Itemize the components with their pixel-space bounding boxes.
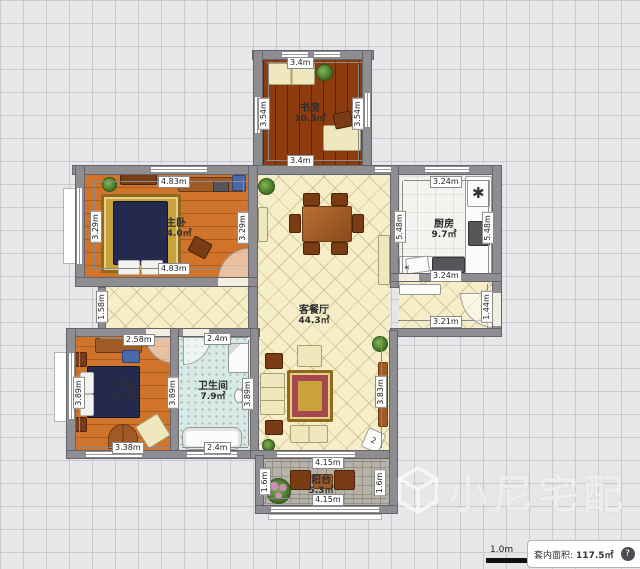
sofa[interactable] [260, 373, 285, 415]
dim-balcony-bottom[interactable]: 4.15m [312, 494, 344, 506]
room-area: 44.3㎡ [284, 316, 344, 326]
scale-label: 1.0m [490, 545, 513, 555]
dim-line [266, 160, 363, 161]
room-name: 卫生间 [183, 381, 243, 392]
desk-chair[interactable] [213, 181, 229, 192]
shower[interactable] [228, 343, 249, 373]
room-name: 书房 [285, 103, 335, 114]
area-label: 套内面积: [534, 548, 573, 561]
watermark-text: 小尼宅配 [448, 462, 628, 520]
room-area: 7.9㎡ [183, 392, 243, 402]
desk-chair[interactable] [122, 350, 140, 363]
window[interactable] [364, 92, 371, 128]
help-button[interactable]: ? [621, 547, 635, 561]
dim-living-right[interactable]: 3.83m [375, 376, 387, 408]
dim-kitchen-left[interactable]: 5.48m [394, 211, 406, 243]
dim-kitchen-top[interactable]: 3.24m [430, 176, 462, 188]
room-area: 14.0㎡ [151, 229, 201, 239]
room-floor-hallway[interactable] [106, 286, 258, 330]
wall[interactable] [248, 165, 258, 335]
plant[interactable] [102, 177, 117, 192]
dining-chair[interactable] [303, 242, 320, 255]
area-value: 117.5㎡ [576, 548, 613, 561]
dim-balcony-right[interactable]: 1.6m [374, 470, 386, 497]
room-name: 客餐厅 [284, 305, 344, 316]
side-table[interactable] [265, 353, 283, 369]
side-table[interactable] [265, 420, 283, 435]
plant[interactable] [372, 336, 388, 352]
armchair[interactable] [297, 345, 322, 367]
nightstand[interactable] [75, 352, 87, 367]
room-label-second: 次卧 11.6㎡ [99, 381, 149, 402]
dim-study-bottom[interactable]: 3.4m [287, 155, 314, 167]
dim-hall-left[interactable]: 1.58m [96, 291, 108, 323]
window[interactable] [270, 506, 380, 513]
room-area: 11.6㎡ [99, 392, 149, 402]
window[interactable] [374, 166, 392, 173]
dim-balcony-top[interactable]: 4.15m [312, 457, 344, 469]
dim-master-left[interactable]: 3.29m [90, 211, 102, 243]
room-label-balcony: 阳台 5.3㎡ [296, 475, 346, 496]
dim-kitchen-bottom[interactable]: 3.24m [430, 270, 462, 282]
room-label-bath: 卫生间 7.9㎡ [183, 381, 243, 402]
dim-second-bottom[interactable]: 3.38m [112, 442, 144, 454]
floor-plan-canvas[interactable]: « ✱ 2 [0, 0, 640, 569]
room-label-kitchen: 厨房 9.7㎡ [419, 219, 469, 240]
dim-bath-bottom[interactable]: 2.4m [204, 442, 231, 454]
wall[interactable] [390, 328, 502, 337]
plant[interactable] [316, 64, 333, 81]
room-name: 主卧 [151, 218, 201, 229]
room-name: 次卧 [99, 381, 149, 392]
dim-entry-right[interactable]: 1.44m [481, 291, 493, 323]
dim-bath-right[interactable]: 3.89m [242, 378, 254, 410]
area-info-box: 套内面积: 117.5㎡ ? [527, 540, 640, 568]
dining-chair[interactable] [352, 214, 364, 233]
living-rug[interactable] [287, 370, 333, 422]
dim-second-right[interactable]: 3.89m [167, 377, 179, 409]
door-opening[interactable] [493, 293, 501, 326]
sink-icon: ✱ [472, 184, 485, 202]
shoe-cabinet[interactable] [399, 284, 441, 295]
nightstand[interactable] [75, 417, 87, 432]
window[interactable] [424, 166, 470, 173]
dining-chair[interactable] [331, 242, 348, 255]
window-sill [268, 514, 382, 520]
room-name: 阳台 [296, 475, 346, 486]
dim-line [266, 62, 363, 63]
door-opening[interactable] [399, 274, 419, 281]
window[interactable] [313, 51, 341, 58]
sideboard[interactable] [378, 235, 390, 285]
dim-master-top[interactable]: 4.83m [158, 176, 190, 188]
dining-chair[interactable] [303, 193, 320, 206]
scale-bar [486, 558, 528, 563]
dim-study-left[interactable]: 3.54m [258, 98, 270, 130]
sliding-door-icon: « [404, 263, 410, 273]
dining-chair[interactable] [331, 193, 348, 206]
plant[interactable] [258, 178, 275, 195]
loveseat[interactable] [290, 425, 328, 443]
dim-master-right[interactable]: 3.29m [237, 212, 249, 244]
dim-second-left[interactable]: 3.89m [73, 377, 85, 409]
watermark: 小尼宅配 [396, 462, 628, 520]
brand-cube-icon [396, 465, 440, 517]
dim-kitchen-right[interactable]: 5.48m [482, 212, 494, 244]
room-label-master: 主卧 14.0㎡ [151, 218, 201, 239]
dim-entry-width[interactable]: 3.21m [430, 316, 462, 328]
dresser[interactable] [120, 174, 157, 185]
dim-study-right[interactable]: 3.54m [352, 98, 364, 130]
room-area: 10.5㎡ [285, 114, 335, 124]
dim-study-top[interactable]: 3.4m [287, 57, 314, 69]
room-area: 9.7㎡ [419, 230, 469, 240]
dim-second-top[interactable]: 2.58m [123, 334, 155, 346]
dim-bath-top[interactable]: 2.4m [204, 333, 231, 345]
window[interactable] [76, 187, 83, 265]
door-opening[interactable] [218, 278, 248, 286]
room-name: 厨房 [419, 219, 469, 230]
wall[interactable] [389, 330, 398, 513]
dim-master-bottom[interactable]: 4.83m [158, 263, 190, 275]
room-label-living: 客餐厅 44.3㎡ [284, 305, 344, 326]
room-label-study: 书房 10.5㎡ [285, 103, 335, 124]
box-label: 2 [369, 435, 377, 445]
dining-chair[interactable] [289, 214, 301, 233]
sideboard[interactable] [258, 207, 268, 242]
dim-balcony-left[interactable]: 1.6m [259, 469, 271, 496]
window[interactable] [150, 166, 208, 173]
dining-table[interactable] [302, 206, 352, 242]
